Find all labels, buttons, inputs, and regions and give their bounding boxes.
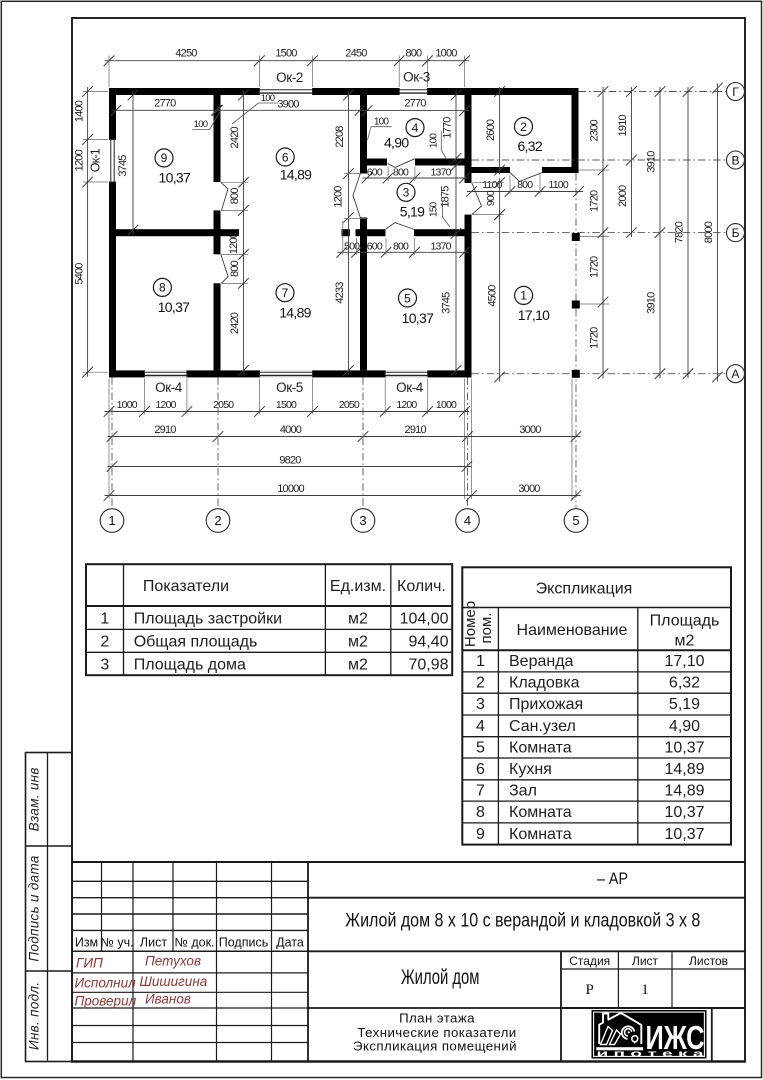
svg-text:1000: 1000: [436, 399, 457, 411]
svg-text:Комната: Комната: [509, 826, 572, 843]
svg-text:104,00: 104,00: [400, 611, 449, 628]
svg-text:1: 1: [641, 982, 649, 998]
svg-text:Ок-2: Ок-2: [276, 70, 303, 85]
svg-text:2910: 2910: [154, 424, 176, 436]
svg-text:Технические показатели: Технические показатели: [357, 1025, 516, 1040]
svg-text:9: 9: [161, 151, 168, 165]
svg-text:3: 3: [476, 696, 485, 713]
svg-text:1: 1: [100, 611, 109, 628]
svg-text:800: 800: [405, 48, 422, 60]
svg-text:800: 800: [393, 166, 409, 178]
svg-text:6,32: 6,32: [669, 675, 700, 692]
svg-text:14,89: 14,89: [664, 761, 704, 778]
svg-text:100: 100: [261, 93, 275, 104]
svg-text:7: 7: [282, 286, 289, 300]
svg-text:Взам. инв: Взам. инв: [27, 767, 42, 831]
svg-text:Экспликация помещений: Экспликация помещений: [353, 1039, 517, 1054]
svg-text:8000: 8000: [703, 221, 715, 243]
svg-text:1400: 1400: [74, 100, 86, 122]
svg-text:Лист: Лист: [632, 954, 659, 968]
svg-text:2050: 2050: [339, 399, 360, 411]
svg-text:2208: 2208: [334, 126, 346, 148]
svg-text:Проверил: Проверил: [75, 993, 137, 1008]
svg-text:94,40: 94,40: [408, 633, 448, 650]
svg-text:3: 3: [100, 656, 109, 673]
svg-text:Р: Р: [586, 982, 594, 998]
svg-text:№ док.: № док.: [174, 935, 214, 949]
svg-text:2770: 2770: [154, 97, 176, 109]
svg-text:1000: 1000: [435, 48, 457, 60]
svg-text:4: 4: [476, 718, 485, 735]
svg-text:Кладовка: Кладовка: [509, 675, 580, 692]
svg-text:2: 2: [520, 120, 527, 134]
svg-text:150: 150: [429, 201, 440, 217]
svg-text:м2: м2: [348, 633, 368, 650]
svg-text:1910: 1910: [617, 114, 629, 136]
svg-text:5400: 5400: [74, 263, 86, 285]
svg-text:Веранда: Веранда: [509, 653, 574, 670]
svg-text:4000: 4000: [280, 424, 302, 436]
svg-text:10,37: 10,37: [402, 310, 434, 326]
svg-text:1: 1: [476, 653, 485, 670]
svg-text:600: 600: [367, 166, 383, 178]
svg-text:2: 2: [100, 633, 109, 650]
svg-text:пом.: пом.: [478, 613, 495, 644]
svg-text:Г: Г: [732, 85, 739, 99]
svg-text:А: А: [731, 367, 739, 381]
svg-text:5,19: 5,19: [400, 203, 425, 219]
svg-text:1200: 1200: [156, 399, 177, 411]
svg-text:1500: 1500: [275, 48, 297, 60]
svg-text:Б: Б: [732, 226, 740, 240]
svg-text:1720: 1720: [588, 256, 600, 278]
svg-text:Площадь дома: Площадь дома: [134, 656, 246, 673]
svg-text:Площадь застройки: Площадь застройки: [134, 611, 282, 628]
svg-text:Площадь: Площадь: [650, 613, 720, 630]
svg-text:2910: 2910: [405, 424, 427, 436]
svg-text:2770: 2770: [404, 97, 426, 109]
svg-text:3900: 3900: [277, 99, 299, 111]
svg-text:1100: 1100: [549, 179, 569, 191]
svg-text:4: 4: [412, 121, 419, 135]
svg-text:900: 900: [485, 190, 497, 206]
svg-text:1875: 1875: [439, 186, 451, 208]
svg-text:1720: 1720: [588, 327, 600, 349]
svg-text:1: 1: [108, 513, 115, 528]
svg-text:2: 2: [476, 675, 485, 692]
svg-text:1000: 1000: [117, 399, 138, 411]
svg-text:Шишигина: Шишигина: [140, 974, 208, 989]
svg-text:– АР: – АР: [597, 870, 628, 888]
svg-text:и п о т е к а: и п о т е к а: [597, 1048, 706, 1058]
svg-text:4500: 4500: [487, 285, 499, 307]
svg-text:Инв. подл.: Инв. подл.: [27, 982, 42, 1050]
svg-text:1200: 1200: [74, 149, 86, 171]
svg-text:17,10: 17,10: [518, 307, 550, 323]
svg-text:4: 4: [464, 513, 471, 528]
svg-text:3000: 3000: [519, 424, 541, 436]
svg-text:Показатели: Показатели: [143, 578, 229, 595]
svg-text:8: 8: [476, 804, 485, 821]
svg-text:6: 6: [476, 761, 485, 778]
svg-text:1720: 1720: [588, 190, 600, 212]
svg-text:14,89: 14,89: [664, 783, 704, 800]
svg-text:2450: 2450: [345, 48, 367, 60]
svg-text:800: 800: [517, 179, 533, 191]
svg-text:2050: 2050: [213, 399, 234, 411]
svg-text:Листов: Листов: [689, 954, 728, 968]
svg-text:Зал: Зал: [509, 783, 537, 800]
svg-text:Лист: Лист: [140, 935, 167, 949]
svg-text:1200: 1200: [396, 399, 417, 411]
svg-text:5,19: 5,19: [669, 696, 700, 713]
svg-text:800: 800: [229, 260, 241, 277]
svg-text:Ок-4: Ок-4: [396, 380, 424, 395]
svg-text:14,89: 14,89: [280, 167, 312, 183]
svg-text:2: 2: [214, 513, 221, 528]
svg-text:10000: 10000: [277, 483, 304, 495]
svg-text:10,37: 10,37: [159, 169, 191, 185]
svg-text:100: 100: [194, 119, 208, 130]
svg-text:3: 3: [359, 513, 366, 528]
svg-text:6: 6: [282, 150, 289, 164]
svg-text:9820: 9820: [279, 455, 301, 467]
svg-text:Ед.изм.: Ед.изм.: [330, 578, 386, 595]
svg-text:2600: 2600: [485, 119, 497, 141]
svg-text:Ок-5: Ок-5: [276, 380, 303, 395]
svg-text:7: 7: [476, 783, 485, 800]
svg-text:14,89: 14,89: [279, 305, 311, 321]
svg-text:ГИП: ГИП: [76, 956, 103, 971]
svg-text:Прихожая: Прихожая: [509, 696, 583, 713]
svg-text:100: 100: [374, 117, 390, 128]
svg-text:7820: 7820: [673, 221, 685, 243]
svg-text:2420: 2420: [229, 126, 241, 148]
svg-text:5: 5: [476, 739, 485, 756]
svg-text:1500: 1500: [276, 399, 297, 411]
svg-text:10,37: 10,37: [664, 826, 704, 843]
svg-text:2420: 2420: [229, 312, 241, 334]
svg-text:Ок-3: Ок-3: [403, 70, 430, 85]
svg-text:Петухов: Петухов: [145, 954, 201, 969]
svg-text:800: 800: [393, 241, 409, 253]
svg-text:4,90: 4,90: [669, 718, 700, 735]
svg-text:3910: 3910: [645, 292, 657, 314]
svg-text:3: 3: [403, 186, 410, 200]
svg-text:1200: 1200: [228, 232, 240, 254]
svg-text:3000: 3000: [518, 483, 540, 495]
svg-text:Общая площадь: Общая площадь: [134, 633, 258, 650]
svg-text:10,37: 10,37: [664, 739, 704, 756]
svg-text:Изм: Изм: [75, 935, 98, 949]
svg-text:План этажа: План этажа: [399, 1011, 475, 1026]
svg-text:Подпись и дата: Подпись и дата: [27, 855, 42, 962]
svg-text:м2: м2: [675, 633, 695, 650]
svg-text:6,32: 6,32: [517, 138, 542, 154]
svg-text:Номер: Номер: [462, 601, 479, 647]
svg-text:9: 9: [476, 826, 485, 843]
svg-text:м2: м2: [348, 656, 368, 673]
svg-text:№ уч.: № уч.: [100, 935, 133, 949]
svg-text:Дата: Дата: [276, 935, 304, 949]
svg-text:1770: 1770: [442, 117, 454, 139]
svg-text:Наименование: Наименование: [517, 622, 628, 639]
svg-text:1370: 1370: [431, 166, 452, 178]
svg-text:Жилой дом 8 х 10 с верандой и: Жилой дом 8 х 10 с верандой и кладовкой …: [345, 910, 700, 931]
svg-text:Колич.: Колич.: [397, 578, 446, 595]
svg-text:17,10: 17,10: [664, 653, 704, 670]
svg-text:Комната: Комната: [509, 804, 572, 821]
svg-text:1200: 1200: [333, 186, 345, 208]
svg-text:3910: 3910: [645, 151, 657, 173]
svg-text:В: В: [731, 153, 739, 167]
svg-text:4250: 4250: [175, 48, 197, 60]
svg-text:8: 8: [159, 281, 166, 295]
svg-text:3745: 3745: [117, 155, 129, 177]
svg-text:3745: 3745: [441, 292, 453, 314]
svg-text:Ок-4: Ок-4: [155, 380, 183, 395]
svg-text:Комната: Комната: [509, 739, 572, 756]
svg-text:5: 5: [572, 513, 579, 528]
svg-text:10,37: 10,37: [158, 299, 190, 315]
svg-text:5: 5: [404, 291, 411, 305]
svg-text:Экспликация: Экспликация: [536, 581, 633, 598]
svg-text:Иванов: Иванов: [145, 992, 191, 1007]
svg-text:Подпись: Подпись: [219, 935, 268, 949]
svg-text:м2: м2: [348, 611, 368, 628]
svg-text:4233: 4233: [334, 282, 346, 304]
svg-text:1: 1: [520, 289, 527, 303]
svg-text:10,37: 10,37: [664, 804, 704, 821]
svg-text:Исполнил: Исполнил: [75, 975, 137, 990]
svg-text:Жилой дом: Жилой дом: [401, 966, 480, 989]
svg-text:800: 800: [229, 188, 241, 205]
svg-text:Стадия: Стадия: [569, 954, 610, 968]
svg-text:Сан.узел: Сан.узел: [509, 718, 576, 735]
svg-text:70,98: 70,98: [408, 656, 448, 673]
svg-text:1370: 1370: [431, 241, 452, 253]
svg-text:2000: 2000: [617, 185, 629, 207]
svg-text:600: 600: [367, 241, 383, 253]
svg-text:500: 500: [344, 241, 360, 253]
svg-text:Кухня: Кухня: [509, 761, 552, 778]
svg-text:4,90: 4,90: [384, 135, 409, 151]
svg-text:Ок-1: Ок-1: [89, 148, 103, 172]
svg-text:100: 100: [428, 133, 439, 149]
svg-text:2300: 2300: [588, 119, 600, 141]
